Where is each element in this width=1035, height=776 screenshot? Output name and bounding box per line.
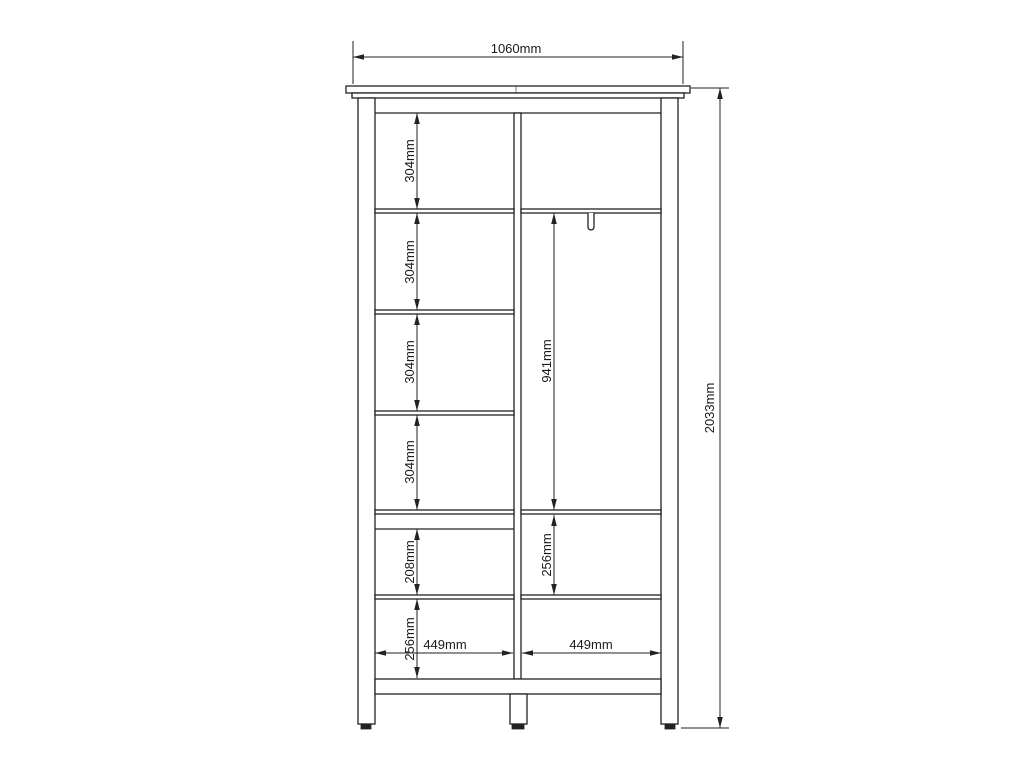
dim-right-upper-label: 941mm <box>540 339 554 382</box>
dim-bottom-right-width-label: 449mm <box>569 638 612 652</box>
left-column-dimensions <box>414 113 420 678</box>
center-leg <box>510 694 527 724</box>
left-shelf-4 <box>375 510 514 514</box>
dim-left-segment-2-label: 304mm <box>403 240 417 283</box>
dim-left-segment-6-label: 256mm <box>403 617 417 660</box>
dim-bottom-left-width-label: 449mm <box>423 638 466 652</box>
left-shelf-2 <box>375 310 514 314</box>
foot-glide-left <box>361 724 371 729</box>
center-divider <box>514 113 521 679</box>
technical-drawing-canvas: 1060mm 2033mm 304mm 304mm 304mm 304mm 20… <box>0 0 1035 776</box>
dim-left-segment-4-label: 304mm <box>403 440 417 483</box>
dim-left-segment-3-label: 304mm <box>403 340 417 383</box>
hanging-rail-bracket <box>588 213 594 230</box>
foot-glide-center <box>512 724 524 729</box>
left-shelf-3 <box>375 411 514 415</box>
bottom-panel <box>375 679 661 694</box>
left-shelf-5 <box>375 595 514 599</box>
dim-overall-width-label: 1060mm <box>491 42 542 56</box>
right-middle-shelf <box>521 510 661 514</box>
left-shelf-1 <box>375 209 514 213</box>
crown-molding <box>346 86 690 98</box>
right-side-panel <box>661 98 678 724</box>
dim-left-segment-1-label: 304mm <box>403 139 417 182</box>
right-lower-shelf <box>521 595 661 599</box>
dim-right-lower-label: 256mm <box>540 533 554 576</box>
dim-left-segment-5-label: 208mm <box>403 540 417 583</box>
left-side-panel <box>358 98 375 724</box>
foot-glide-right <box>665 724 675 729</box>
wardrobe-drawing <box>0 0 1035 776</box>
dim-overall-height-label: 2033mm <box>703 383 717 434</box>
right-top-shelf <box>521 209 661 213</box>
